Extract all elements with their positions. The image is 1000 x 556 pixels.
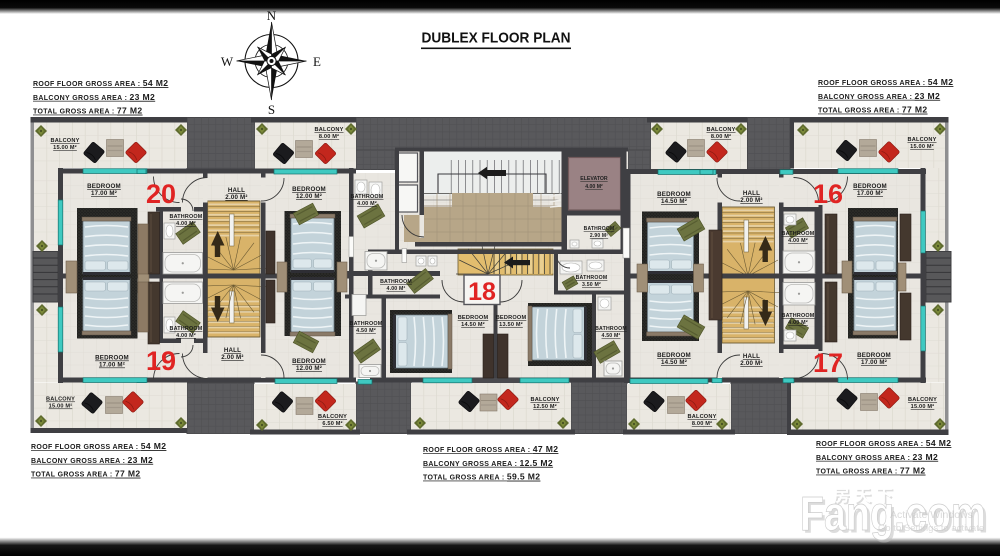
svg-text:BATHROOM: BATHROOM: [584, 226, 615, 232]
svg-text:18: 18: [468, 278, 496, 306]
svg-text:E: E: [313, 54, 321, 69]
svg-text:6.50 M²: 6.50 M²: [322, 420, 342, 427]
svg-text:BATHROOM: BATHROOM: [170, 326, 203, 332]
svg-text:W: W: [221, 54, 234, 69]
svg-text:8.00 M²: 8.00 M²: [692, 420, 712, 427]
svg-text:15.00 M²: 15.00 M²: [49, 403, 73, 410]
svg-text:BALCONY: BALCONY: [314, 127, 343, 133]
svg-text:20: 20: [146, 179, 176, 209]
svg-text:BATHROOM: BATHROOM: [351, 194, 384, 200]
svg-text:BATHROOM: BATHROOM: [782, 313, 815, 319]
svg-text:12.00 M²: 12.00 M²: [296, 193, 322, 200]
svg-text:BALCONY: BALCONY: [530, 397, 559, 403]
svg-text:BALCONY: BALCONY: [908, 397, 937, 403]
svg-text:19: 19: [146, 346, 176, 376]
svg-text:HALL: HALL: [228, 187, 245, 194]
svg-text:HALL: HALL: [224, 347, 241, 354]
svg-text:BALCONY: BALCONY: [907, 137, 936, 143]
svg-text:BATHROOM: BATHROOM: [380, 279, 412, 285]
svg-text:BATHROOM: BATHROOM: [595, 326, 627, 332]
svg-text:BEDROOM: BEDROOM: [657, 191, 691, 198]
svg-text:14.50 M²: 14.50 M²: [661, 359, 687, 366]
svg-text:2.00 M²: 2.00 M²: [740, 197, 762, 204]
svg-text:HALL: HALL: [743, 353, 760, 360]
svg-text:BEDROOM: BEDROOM: [853, 183, 887, 190]
svg-text:17.00 M²: 17.00 M²: [91, 190, 117, 197]
svg-text:BATHROOM: BATHROOM: [576, 275, 608, 281]
svg-text:14.50 M²: 14.50 M²: [461, 321, 485, 328]
svg-text:8.00 M²: 8.00 M²: [319, 133, 339, 140]
svg-text:2.00 M²: 2.00 M²: [225, 194, 247, 201]
svg-text:BALCONY: BALCONY: [687, 414, 716, 420]
svg-text:8.00 M²: 8.00 M²: [711, 133, 731, 140]
svg-text:17.00 M²: 17.00 M²: [99, 362, 125, 369]
svg-text:N: N: [267, 8, 277, 23]
svg-text:BEDROOM: BEDROOM: [95, 355, 129, 362]
svg-text:BATHROOM: BATHROOM: [170, 214, 203, 220]
svg-text:12.50 M²: 12.50 M²: [533, 403, 557, 410]
svg-text:HALL: HALL: [743, 190, 760, 197]
svg-text:12.00 M²: 12.00 M²: [296, 365, 322, 372]
svg-text:4.00 M²: 4.00 M²: [788, 320, 808, 326]
svg-text:4.50 M²: 4.50 M²: [602, 333, 621, 339]
svg-text:BEDROOM: BEDROOM: [496, 315, 527, 321]
svg-text:2.00 M²: 2.00 M²: [740, 360, 762, 367]
svg-text:4.00 M²: 4.00 M²: [176, 221, 196, 227]
svg-text:4.00 M²: 4.00 M²: [788, 238, 808, 244]
svg-text:BEDROOM: BEDROOM: [87, 183, 121, 190]
svg-text:BEDROOM: BEDROOM: [657, 352, 691, 359]
svg-text:BATHROOM: BATHROOM: [350, 321, 383, 327]
svg-text:16: 16: [813, 179, 843, 209]
svg-text:BEDROOM: BEDROOM: [292, 358, 326, 365]
svg-text:17.00 M²: 17.00 M²: [861, 359, 887, 366]
svg-text:房天下: 房天下: [833, 485, 898, 505]
svg-text:15.00 M²: 15.00 M²: [911, 403, 935, 410]
svg-text:BATHROOM: BATHROOM: [782, 231, 815, 237]
svg-text:4.50 M²: 4.50 M²: [356, 328, 376, 334]
svg-text:BALCONY: BALCONY: [706, 127, 735, 133]
svg-text:4.00 M²: 4.00 M²: [585, 184, 603, 190]
svg-text:BEDROOM: BEDROOM: [857, 352, 891, 359]
svg-text:4.00 M²: 4.00 M²: [357, 201, 377, 207]
svg-text:14.50 M²: 14.50 M²: [661, 198, 687, 205]
svg-text:4.00 M²: 4.00 M²: [176, 333, 196, 339]
svg-text:BEDROOM: BEDROOM: [458, 315, 489, 321]
svg-text:DUBLEX FLOOR PLAN: DUBLEX FLOOR PLAN: [422, 30, 571, 47]
svg-text:S: S: [268, 102, 275, 117]
svg-text:BALCONY: BALCONY: [46, 397, 75, 403]
svg-text:13.50 M²: 13.50 M²: [499, 321, 523, 328]
svg-text:BEDROOM: BEDROOM: [292, 186, 326, 193]
svg-text:2.90 M²: 2.90 M²: [590, 233, 608, 239]
svg-text:15.00 M²: 15.00 M²: [910, 143, 934, 150]
svg-text:BALCONY: BALCONY: [318, 414, 347, 420]
svg-text:4.00 M²: 4.00 M²: [387, 286, 406, 292]
svg-text:2.00 M²: 2.00 M²: [221, 354, 243, 361]
svg-text:3.50 M²: 3.50 M²: [582, 282, 601, 288]
svg-text:17.00 M²: 17.00 M²: [857, 190, 883, 197]
svg-text:BALCONY: BALCONY: [50, 138, 79, 144]
svg-text:17: 17: [813, 348, 843, 378]
svg-text:Go to Settings to activate: Go to Settings to activate: [878, 523, 984, 534]
svg-text:ELEVATOR: ELEVATOR: [580, 176, 608, 182]
svg-text:Activate Windows: Activate Windows: [890, 509, 973, 521]
svg-text:15.00 M²: 15.00 M²: [53, 144, 77, 151]
